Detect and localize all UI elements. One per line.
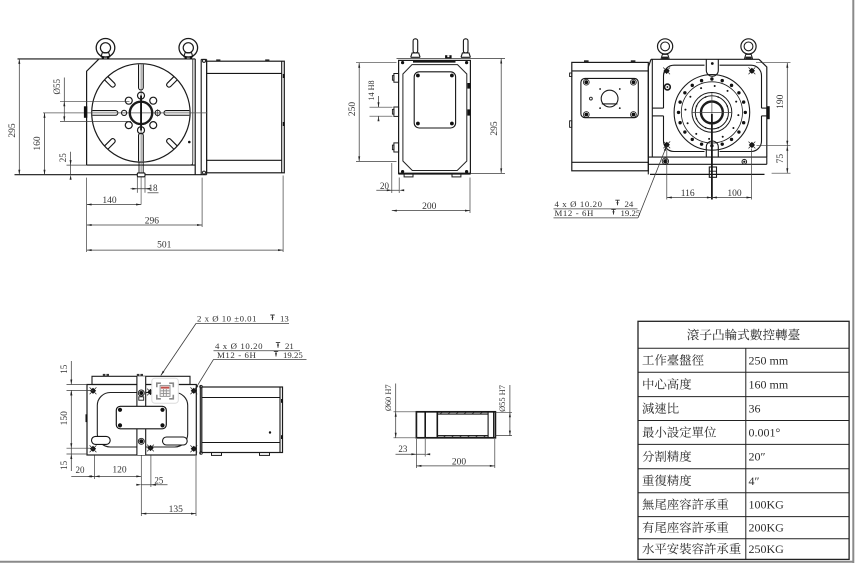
svg-text:200KG: 200KG — [749, 521, 785, 535]
svg-text:295: 295 — [8, 123, 18, 138]
svg-text:M12 - 6H: M12 - 6H — [217, 350, 257, 360]
svg-text:20: 20 — [380, 181, 390, 191]
svg-text:4″: 4″ — [749, 474, 760, 488]
svg-text:20: 20 — [76, 465, 86, 475]
svg-text:Ø55 H7: Ø55 H7 — [498, 385, 507, 412]
svg-text:36: 36 — [749, 402, 761, 416]
svg-text:Ø60 H7: Ø60 H7 — [384, 384, 393, 411]
svg-text:190: 190 — [776, 94, 786, 109]
svg-text:250 mm: 250 mm — [749, 353, 789, 367]
svg-text:25: 25 — [58, 153, 68, 163]
svg-text:120: 120 — [112, 466, 127, 476]
svg-text:116: 116 — [681, 189, 695, 199]
svg-text:296: 296 — [145, 217, 160, 227]
svg-text:14 H8: 14 H8 — [367, 80, 376, 100]
svg-text:100KG: 100KG — [749, 498, 785, 512]
svg-text:25: 25 — [154, 476, 164, 486]
svg-text:19.25: 19.25 — [283, 350, 303, 360]
svg-text:23: 23 — [398, 444, 408, 454]
svg-text:19.25: 19.25 — [621, 208, 641, 218]
svg-text:0.001°: 0.001° — [749, 425, 781, 439]
svg-text:160: 160 — [33, 136, 43, 151]
svg-text:135: 135 — [169, 505, 184, 515]
svg-text:Ø55: Ø55 — [52, 79, 62, 95]
svg-text:200: 200 — [452, 458, 467, 468]
svg-text:160 mm: 160 mm — [749, 377, 789, 391]
svg-text:20″: 20″ — [749, 450, 766, 464]
svg-text:15: 15 — [59, 460, 69, 470]
svg-text:2 x Ø 10 ±0.01: 2 x Ø 10 ±0.01 — [197, 314, 257, 324]
svg-text:M12 - 6H: M12 - 6H — [555, 208, 595, 218]
svg-text:75: 75 — [776, 154, 786, 164]
svg-text:295: 295 — [490, 121, 500, 136]
svg-text:140: 140 — [102, 196, 117, 206]
svg-text:13: 13 — [280, 314, 289, 324]
svg-text:18: 18 — [149, 183, 159, 193]
svg-text:15: 15 — [59, 364, 69, 374]
svg-text:250KG: 250KG — [749, 542, 785, 556]
svg-text:100: 100 — [727, 189, 742, 199]
svg-text:150: 150 — [60, 411, 70, 426]
svg-text:200: 200 — [422, 202, 437, 212]
svg-text:501: 501 — [157, 241, 172, 251]
svg-text:250: 250 — [348, 102, 358, 117]
